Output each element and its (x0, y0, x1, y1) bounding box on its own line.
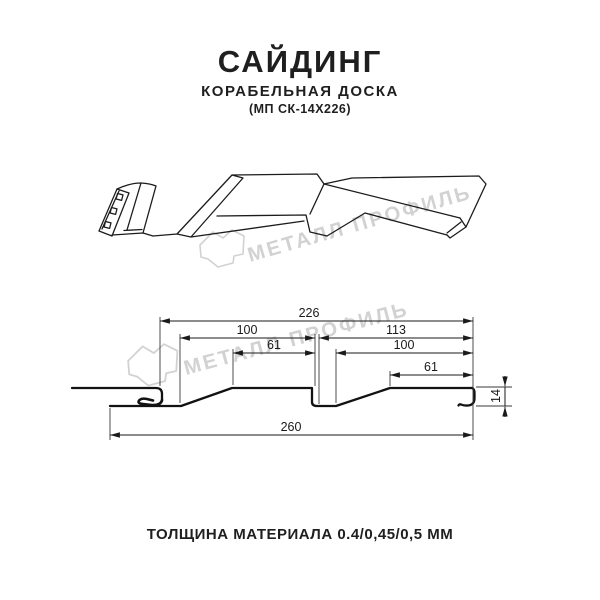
nail-hole (110, 208, 117, 215)
section-lock-curl (139, 399, 162, 405)
metal-profil-logo-icon (200, 230, 244, 267)
dim-label-100-right: 100 (394, 338, 415, 352)
technical-drawing: МЕТАЛЛ ПРОФИЛЬ МЕТАЛЛ ПРОФИЛЬ (0, 0, 600, 600)
metal-profil-logo-icon (128, 344, 177, 385)
watermark-text: МЕТАЛЛ ПРОФИЛЬ (181, 298, 411, 380)
watermark-text: МЕТАЛЛ ПРОФИЛЬ (245, 181, 474, 267)
dim-label-100-left: 100 (237, 323, 258, 337)
dim-label-61-left: 61 (267, 338, 281, 352)
nail-hole (104, 222, 111, 229)
dim-label-260: 260 (281, 420, 302, 434)
dimension-lines (110, 321, 505, 435)
nail-strip (99, 189, 129, 236)
dim-label-226: 226 (299, 306, 320, 320)
product-drawing-page: { "header": { "title": "САЙДИНГ", "subti… (0, 0, 600, 600)
nail-hole (116, 194, 123, 201)
dim-label-113: 113 (386, 323, 406, 337)
section-right-hem (459, 388, 475, 406)
section-profile-outline (110, 388, 472, 406)
thickness-note: ТОЛЩИНА МАТЕРИАЛА 0.4/0,45/0,5 ММ (0, 526, 600, 543)
dim-label-61-right: 61 (424, 360, 438, 374)
watermark-brand: МЕТАЛЛ ПРОФИЛЬ (200, 181, 474, 267)
section-view: 226 100 113 61 100 61 260 14 (72, 306, 512, 440)
dim-label-14: 14 (489, 389, 503, 403)
